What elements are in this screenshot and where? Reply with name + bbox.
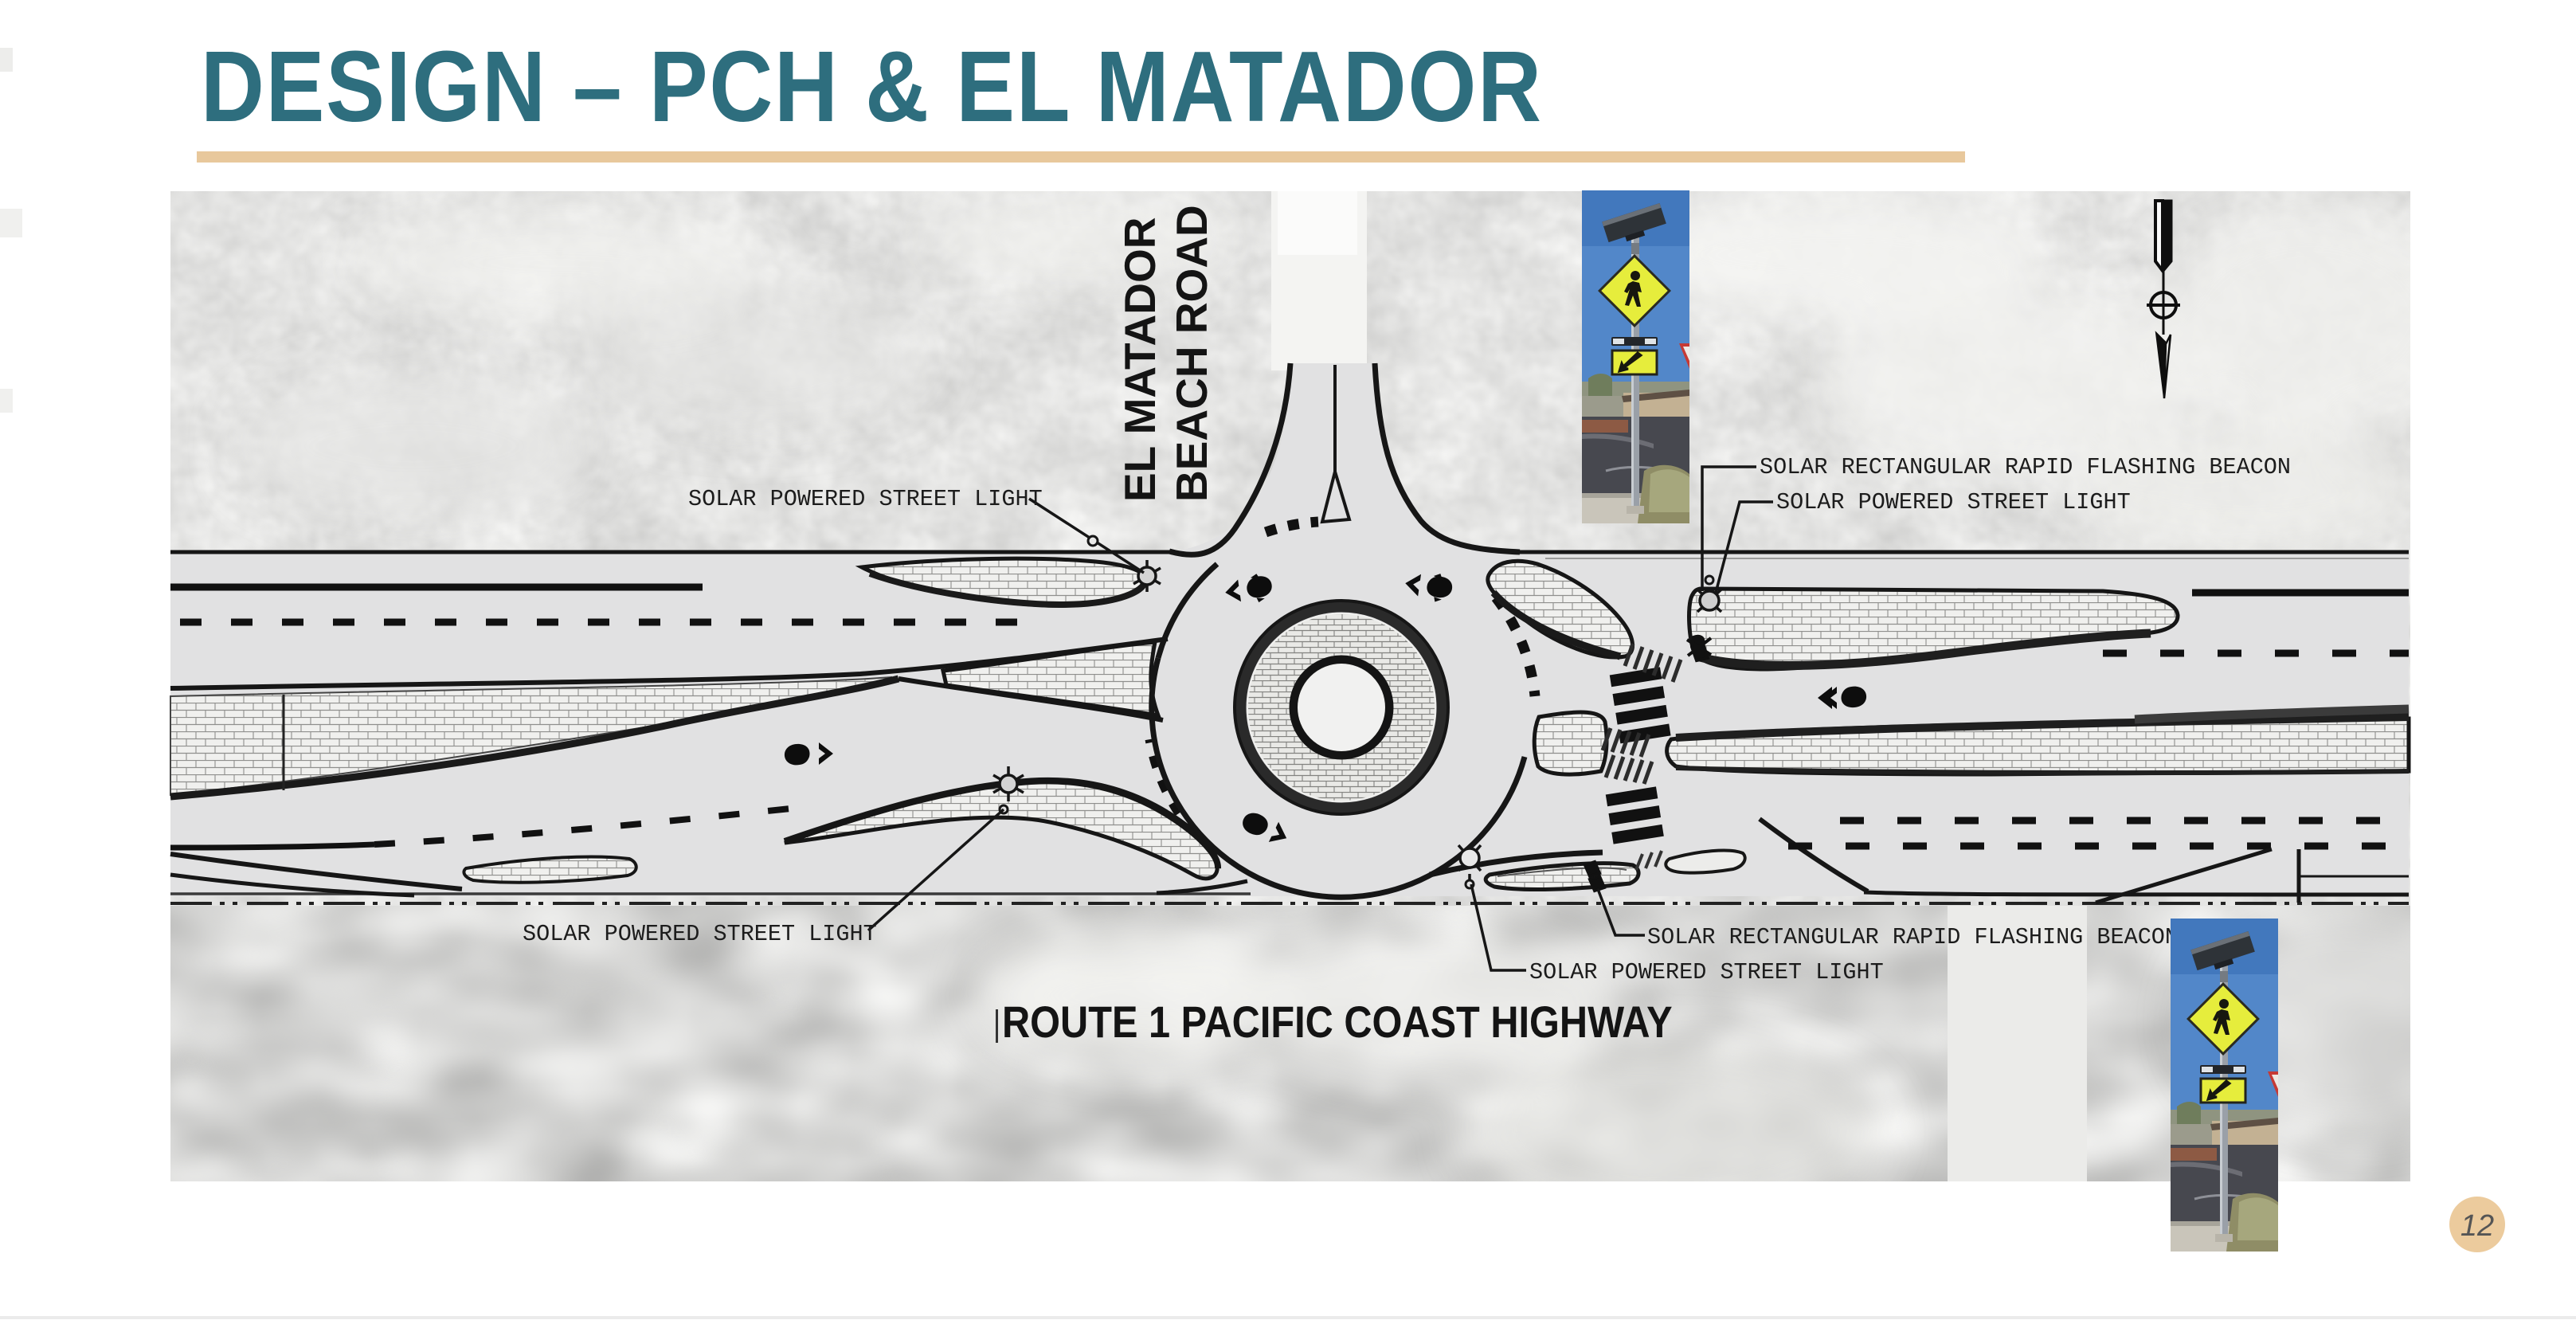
svg-text:EL MATADOR: EL MATADOR [1115, 217, 1165, 502]
svg-text:SOLAR POWERED STREET LIGHT: SOLAR POWERED STREET LIGHT [688, 486, 1043, 512]
svg-text:SOLAR POWERED STREET LIGHT: SOLAR POWERED STREET LIGHT [1776, 489, 2131, 515]
svg-text:BEACH ROAD: BEACH ROAD [1167, 205, 1216, 502]
svg-text:SOLAR RECTANGULAR RAPID FLASHI: SOLAR RECTANGULAR RAPID FLASHING BEACON [1647, 924, 2179, 950]
svg-text:ROUTE 1 PACIFIC COAST HIGHWAY: ROUTE 1 PACIFIC COAST HIGHWAY [1002, 997, 1673, 1048]
svg-text:SOLAR RECTANGULAR RAPID FLASHI: SOLAR RECTANGULAR RAPID FLASHING BEACON [1760, 454, 2291, 480]
svg-text:12: 12 [2461, 1209, 2494, 1243]
svg-text:DESIGN – PCH & EL MATADOR: DESIGN – PCH & EL MATADOR [201, 31, 1543, 143]
svg-text:SOLAR POWERED STREET LIGHT: SOLAR POWERED STREET LIGHT [523, 921, 877, 947]
svg-text:SOLAR POWERED STREET LIGHT: SOLAR POWERED STREET LIGHT [1529, 959, 1884, 985]
